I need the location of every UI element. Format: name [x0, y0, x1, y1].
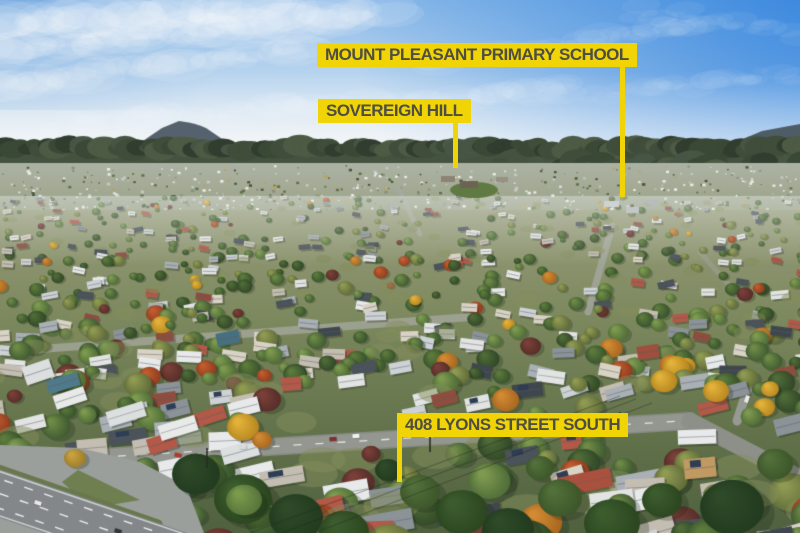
aerial-photo-scene: MOUNT PLEASANT PRIMARY SCHOOL SOVEREIGN … — [0, 0, 800, 533]
callout-sovereign-hill-leader-line — [453, 121, 458, 168]
callout-sovereign-hill-label: SOVEREIGN HILL — [318, 99, 471, 123]
callout-school-label: MOUNT PLEASANT PRIMARY SCHOOL — [317, 43, 637, 67]
callout-property-address-label: 408 LYONS STREET SOUTH — [397, 413, 628, 437]
callout-property-leader-line — [397, 437, 402, 482]
callout-school-leader-line — [620, 66, 625, 197]
